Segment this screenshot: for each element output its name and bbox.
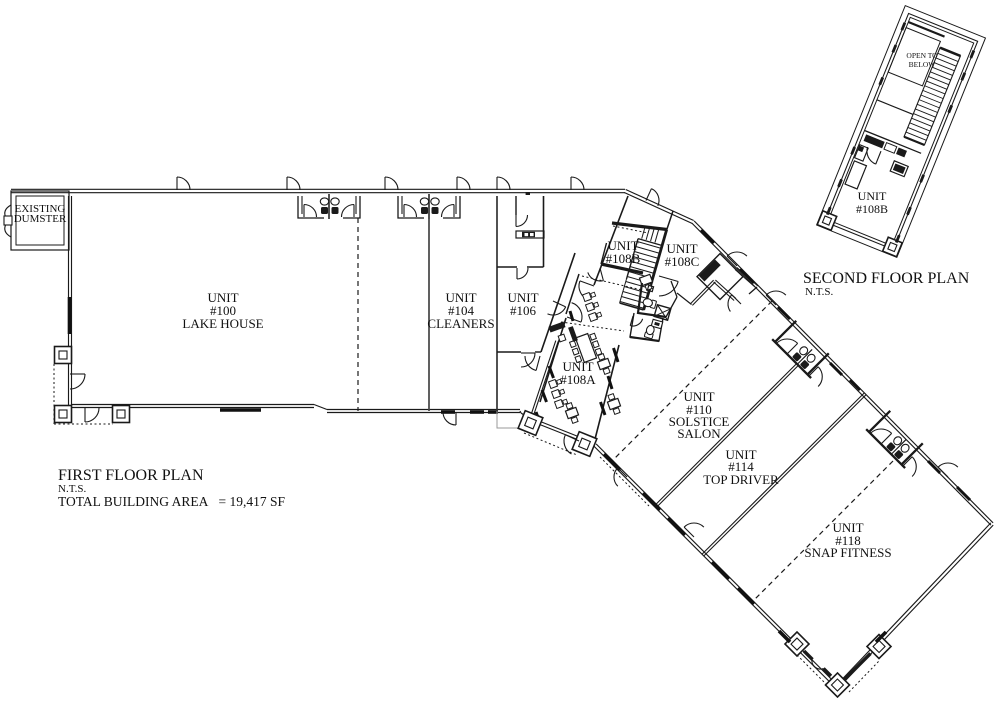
svg-text:SNAP FITNESS: SNAP FITNESS	[804, 545, 891, 560]
svg-text:SECOND FLOOR PLAN: SECOND FLOOR PLAN	[803, 270, 970, 287]
svg-text:#108B: #108B	[606, 251, 641, 266]
svg-text:TOP DRIVER: TOP DRIVER	[703, 472, 779, 487]
svg-text:TOTAL BUILDING AREA = 19,417: TOTAL BUILDING AREA = 19,417 SF	[58, 494, 286, 509]
svg-text:#108A: #108A	[560, 372, 596, 387]
svg-text:LAKE HOUSE: LAKE HOUSE	[182, 316, 263, 331]
svg-text:BELOW: BELOW	[909, 60, 937, 69]
svg-text:UNIT: UNIT	[858, 189, 887, 203]
svg-text:#108C: #108C	[665, 254, 700, 269]
svg-text:#108B: #108B	[856, 202, 888, 216]
svg-text:FIRST FLOOR PLAN: FIRST FLOOR PLAN	[58, 467, 204, 484]
svg-text:CLEANERS: CLEANERS	[427, 316, 494, 331]
svg-text:SALON: SALON	[677, 426, 721, 441]
svg-text:OPEN TO: OPEN TO	[906, 51, 938, 60]
svg-text:DUMSTER: DUMSTER	[14, 213, 67, 225]
svg-text:#106: #106	[510, 303, 537, 318]
svg-text:N.T.S.: N.T.S.	[805, 286, 833, 298]
